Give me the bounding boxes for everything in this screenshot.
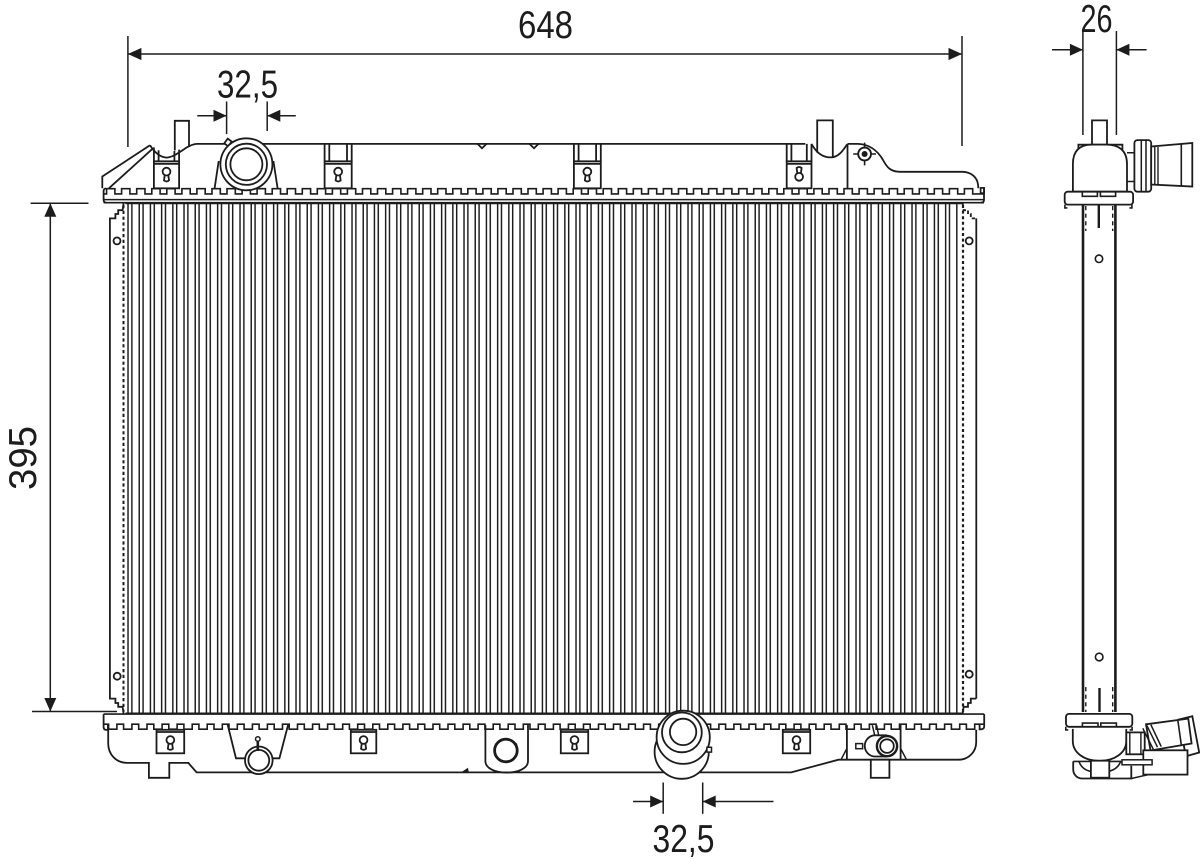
svg-text:648: 648 xyxy=(518,4,573,47)
svg-text:26: 26 xyxy=(1081,0,1113,41)
svg-text:32,5: 32,5 xyxy=(217,63,278,106)
svg-text:32,5: 32,5 xyxy=(653,818,715,859)
svg-text:395: 395 xyxy=(2,426,45,490)
